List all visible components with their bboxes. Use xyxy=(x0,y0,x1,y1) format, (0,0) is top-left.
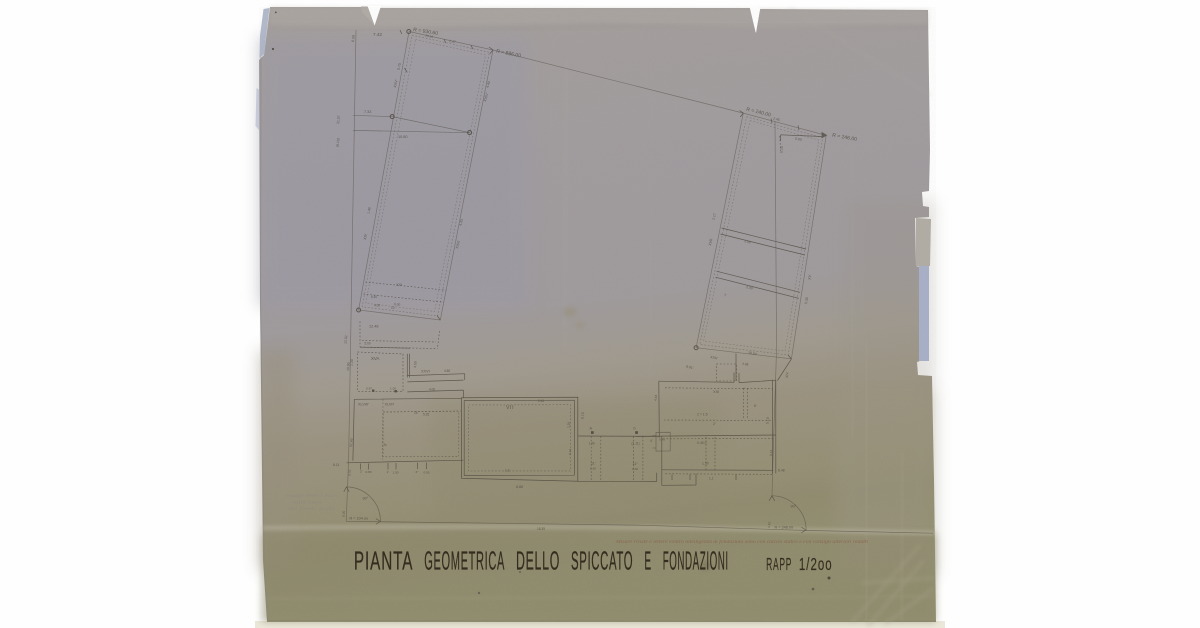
svg-text:8.48: 8.48 xyxy=(778,469,785,473)
svg-text:E: E xyxy=(644,546,651,576)
svg-text:5.25: 5.25 xyxy=(423,413,429,417)
svg-text:5.00: 5.00 xyxy=(365,342,371,346)
svg-text:18.35: 18.35 xyxy=(537,527,545,531)
svg-text:R = 248.00: R = 248.00 xyxy=(775,526,794,530)
svg-text:10: 10 xyxy=(391,306,395,310)
svg-text:10.80: 10.80 xyxy=(398,135,408,139)
svg-text:7.33: 7.33 xyxy=(364,110,371,114)
svg-text:1.30: 1.30 xyxy=(350,359,355,366)
svg-text:0.70: 0.70 xyxy=(348,469,353,476)
svg-text:0.90: 0.90 xyxy=(424,471,430,475)
svg-text:1/2oo: 1/2oo xyxy=(799,554,833,574)
svg-text:0.80: 0.80 xyxy=(366,470,372,474)
svg-text:5.18: 5.18 xyxy=(780,146,784,153)
svg-text:11′: 11′ xyxy=(591,462,596,466)
svg-text:VII: VII xyxy=(506,405,514,411)
svg-text:0.97: 0.97 xyxy=(366,386,372,390)
svg-text:1.00: 1.00 xyxy=(390,387,396,391)
svg-text:8.44: 8.44 xyxy=(568,448,572,455)
svg-text:8.10: 8.10 xyxy=(581,412,585,419)
svg-text:4.44: 4.44 xyxy=(654,394,659,401)
svg-text:8.88: 8.88 xyxy=(516,485,523,489)
svg-text:XLVIII′: XLVIII′ xyxy=(358,403,369,407)
svg-text:XVA: XVA xyxy=(371,356,380,361)
svg-text:Misure riviste e lettere contr: Misure riviste e lettere contro intellig… xyxy=(615,540,869,545)
svg-text:5.00: 5.00 xyxy=(342,510,346,517)
svg-text:SPICCATO: SPICCATO xyxy=(571,546,633,576)
svg-text:6.11: 6.11 xyxy=(333,463,339,467)
svg-text:XIV: XIV xyxy=(785,371,789,378)
svg-text:XLVII′: XLVII′ xyxy=(385,403,395,407)
svg-text:6′: 6′ xyxy=(754,404,757,408)
svg-text:12.48: 12.48 xyxy=(369,325,379,329)
svg-text:DELLO: DELLO xyxy=(516,546,560,576)
svg-text:0.14: 0.14 xyxy=(769,449,773,456)
svg-text:5.10: 5.10 xyxy=(766,417,770,424)
svg-text:4.00: 4.00 xyxy=(374,304,380,308)
svg-text:2 = 1.5: 2 = 1.5 xyxy=(697,413,708,417)
svg-text:6.40: 6.40 xyxy=(371,295,377,299)
svg-text:1.40: 1.40 xyxy=(589,442,595,446)
svg-text:90°: 90° xyxy=(791,505,797,509)
svg-text:6.00: 6.00 xyxy=(394,302,401,307)
svg-text:(1.11): (1.11) xyxy=(632,442,640,446)
svg-text:sulla linea: sulla linea xyxy=(292,501,323,506)
svg-text:0.45 C: 0.45 C xyxy=(697,441,708,445)
svg-text:2′: 2′ xyxy=(713,422,716,426)
svg-text:4.00: 4.00 xyxy=(429,388,435,392)
svg-text:PIANTA: PIANTA xyxy=(354,546,413,576)
svg-text:12.02: 12.02 xyxy=(344,335,349,344)
svg-text:0.60: 0.60 xyxy=(590,467,596,471)
svg-text:1.1: 1.1 xyxy=(709,477,714,481)
svg-text:XIII: XIII xyxy=(713,389,719,394)
svg-text:0.10: 0.10 xyxy=(767,521,771,528)
svg-text:FONDAZIONI: FONDAZIONI xyxy=(663,546,729,576)
svg-text:1.50: 1.50 xyxy=(702,462,709,466)
svg-text:4.80: 4.80 xyxy=(444,369,450,373)
svg-text:6.50: 6.50 xyxy=(351,35,356,42)
svg-text:XXVI: XXVI xyxy=(421,370,430,374)
svg-text:90°: 90° xyxy=(363,497,369,501)
svg-text:XXI: XXI xyxy=(396,283,402,287)
svg-text:4.50: 4.50 xyxy=(413,361,418,368)
svg-text:4′: 4′ xyxy=(650,439,653,443)
svg-text:b: b xyxy=(634,427,636,431)
svg-text:0.60: 0.60 xyxy=(632,467,638,471)
svg-text:1.10: 1.10 xyxy=(567,421,571,428)
svg-text:del fondo scala: del fondo scala xyxy=(288,507,336,512)
svg-text:2.45: 2.45 xyxy=(538,399,544,403)
svg-text:1.8: 1.8 xyxy=(505,469,510,473)
svg-text:RAPP: RAPP xyxy=(766,554,792,574)
svg-text:GEOMETRICA: GEOMETRICA xyxy=(424,546,505,576)
svg-text:15: 15 xyxy=(414,411,418,415)
svg-text:1.00: 1.00 xyxy=(393,471,399,475)
svg-text:R = 104.oo: R = 104.oo xyxy=(350,517,369,521)
svg-text:11″: 11″ xyxy=(633,462,639,466)
svg-text:0.45: 0.45 xyxy=(659,438,665,442)
svg-text:7.42: 7.42 xyxy=(373,32,382,37)
svg-text:vedasi bene i muri: vedasi bene i muri xyxy=(285,494,339,499)
